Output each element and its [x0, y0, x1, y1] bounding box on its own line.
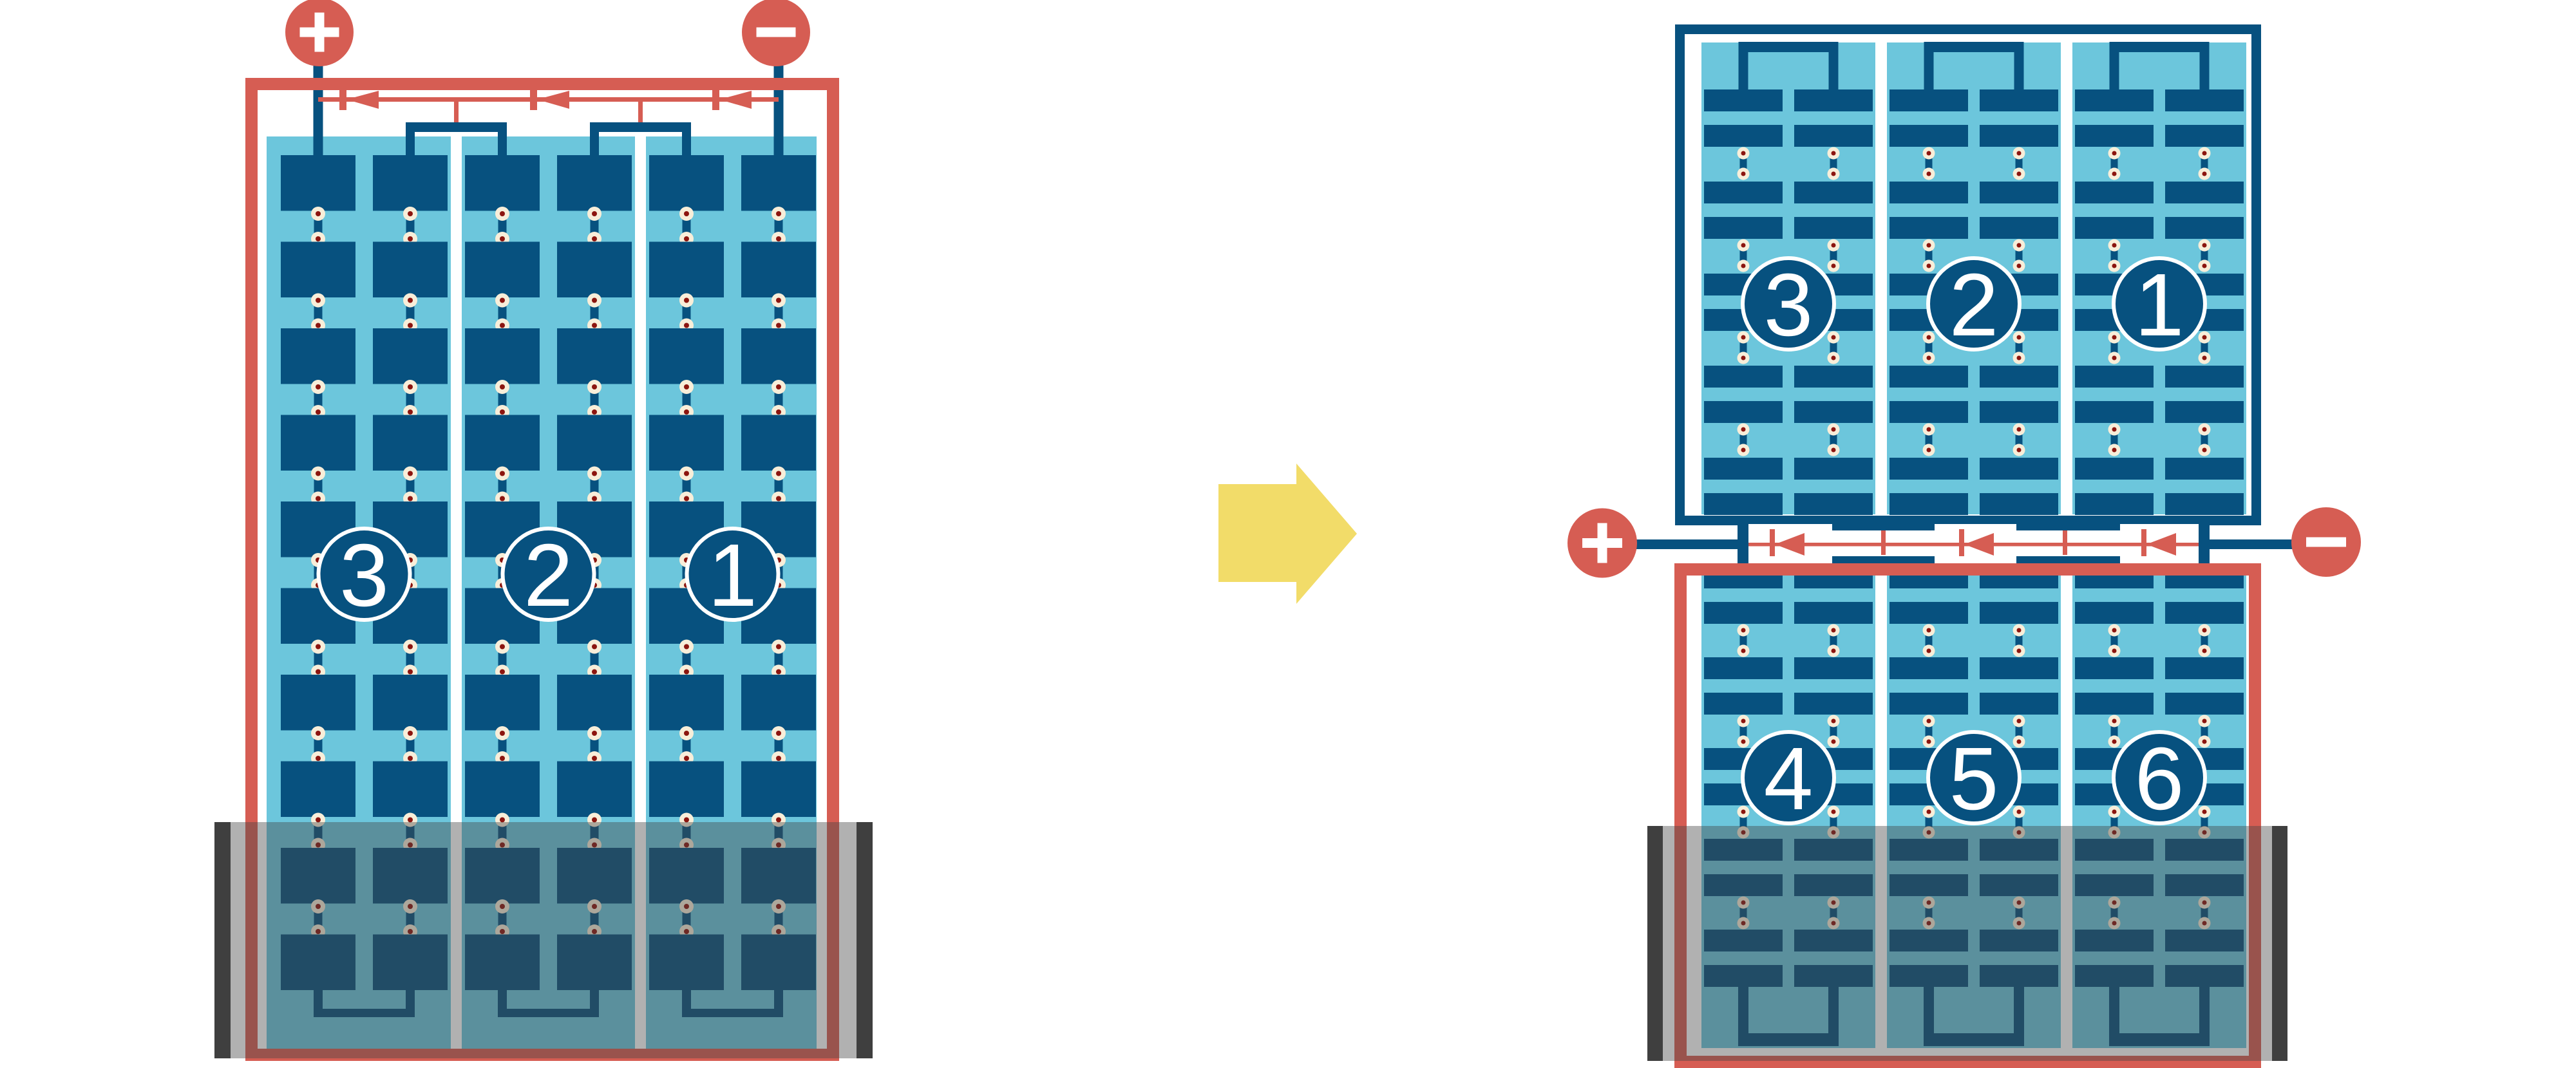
svg-text:1: 1 [2135, 256, 2184, 355]
svg-text:2: 2 [1949, 256, 1999, 355]
svg-text:5: 5 [1949, 729, 1999, 829]
svg-text:3: 3 [1764, 256, 1814, 355]
svg-text:4: 4 [1764, 729, 1814, 829]
svg-text:1: 1 [708, 526, 757, 625]
svg-text:2: 2 [524, 526, 573, 625]
svg-text:6: 6 [2135, 729, 2184, 829]
svg-text:3: 3 [339, 526, 389, 625]
